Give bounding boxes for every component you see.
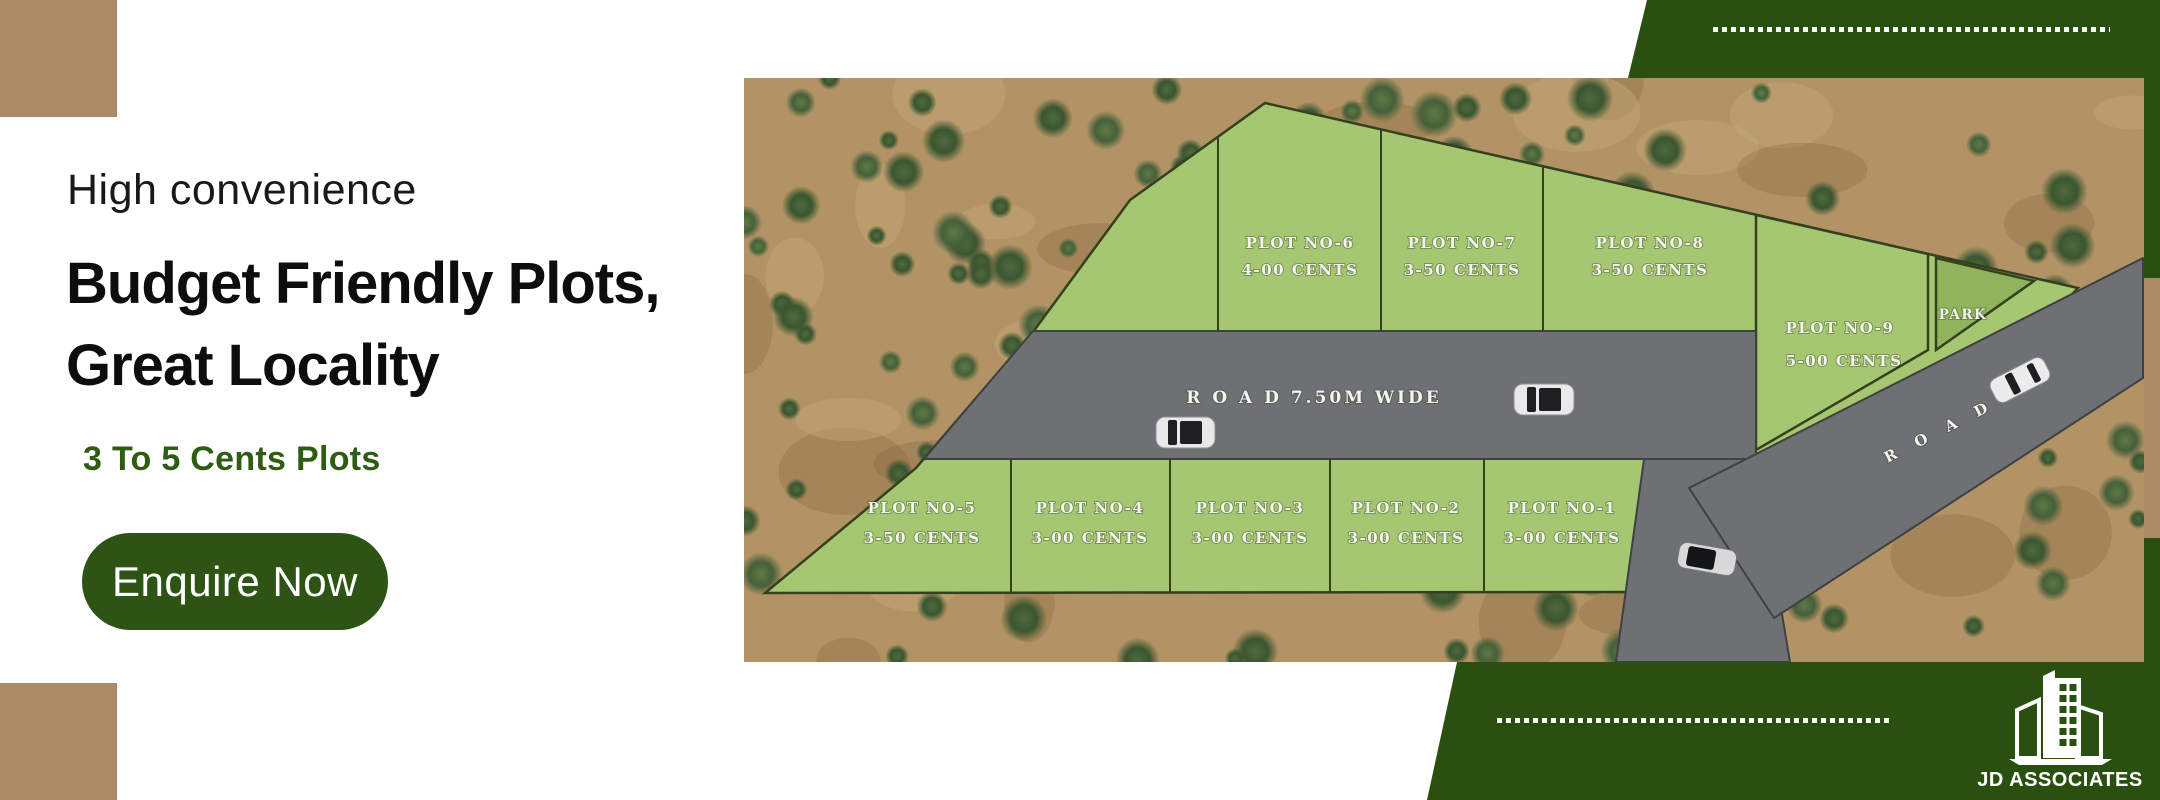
dotted-divider-bottom — [1497, 718, 1892, 723]
brown-accent-right — [2144, 278, 2160, 538]
plot-6-name: PLOT NO-6 — [1246, 234, 1355, 252]
plot-6-area-label: 4-00 CENTS — [1242, 261, 1359, 279]
brand-name: JD ASSOCIATES — [1977, 769, 2142, 792]
dotted-divider-top — [1713, 27, 2110, 32]
plot-1-area-label: 3-00 CENTS — [1504, 529, 1621, 547]
plot-9-name: PLOT NO-9 — [1786, 319, 1895, 337]
plot-8-area-label: 3-50 CENTS — [1592, 261, 1709, 279]
plot-1-name: PLOT NO-1 — [1508, 499, 1617, 517]
brown-accent-square-top-left — [0, 0, 117, 117]
plot-4-name: PLOT NO-4 — [1036, 499, 1145, 517]
brand-logo: JD ASSOCIATES — [1965, 664, 2155, 792]
plot-2-name: PLOT NO-2 — [1352, 499, 1461, 517]
plot-5-name: PLOT NO-5 — [868, 499, 977, 517]
site-plan-graphic: PLOT NO-6 4-00 CENTS PLOT NO-7 3-50 CENT… — [744, 78, 2144, 662]
plot-2-area-label: 3-00 CENTS — [1348, 529, 1465, 547]
enquire-now-button[interactable]: Enquire Now — [82, 533, 388, 630]
car-icon-white-1 — [1156, 417, 1215, 448]
park-label: PARK — [1939, 307, 1988, 323]
headline: Budget Friendly Plots, Great Locality — [66, 243, 660, 407]
plot-7-name: PLOT NO-7 — [1408, 234, 1517, 252]
buildings-icon — [2003, 664, 2118, 766]
banner: High convenience Budget Friendly Plots, … — [0, 0, 2160, 800]
plot-9-area-label: 5-00 CENTS — [1786, 352, 1903, 370]
plot-7-area-label: 3-50 CENTS — [1404, 261, 1521, 279]
headline-line1: Budget Friendly Plots, — [66, 251, 660, 316]
plot-3-area-label: 3-00 CENTS — [1192, 529, 1309, 547]
plot-8-name: PLOT NO-8 — [1596, 234, 1705, 252]
plot-4-area-label: 3-00 CENTS — [1032, 529, 1149, 547]
car-icon-white-2 — [1514, 384, 1574, 415]
headline-line2: Great Locality — [66, 333, 439, 398]
main-road-label: R O A D 7.50M WIDE — [1186, 388, 1441, 408]
brown-accent-square-bottom-left — [0, 683, 117, 800]
subheadline-text: 3 To 5 Cents Plots — [83, 440, 381, 479]
kicker-text: High convenience — [67, 166, 417, 215]
plot-5-area-label: 3-50 CENTS — [864, 529, 981, 547]
site-plan-map: PLOT NO-6 4-00 CENTS PLOT NO-7 3-50 CENT… — [744, 78, 2144, 662]
plot-3-name: PLOT NO-3 — [1196, 499, 1305, 517]
